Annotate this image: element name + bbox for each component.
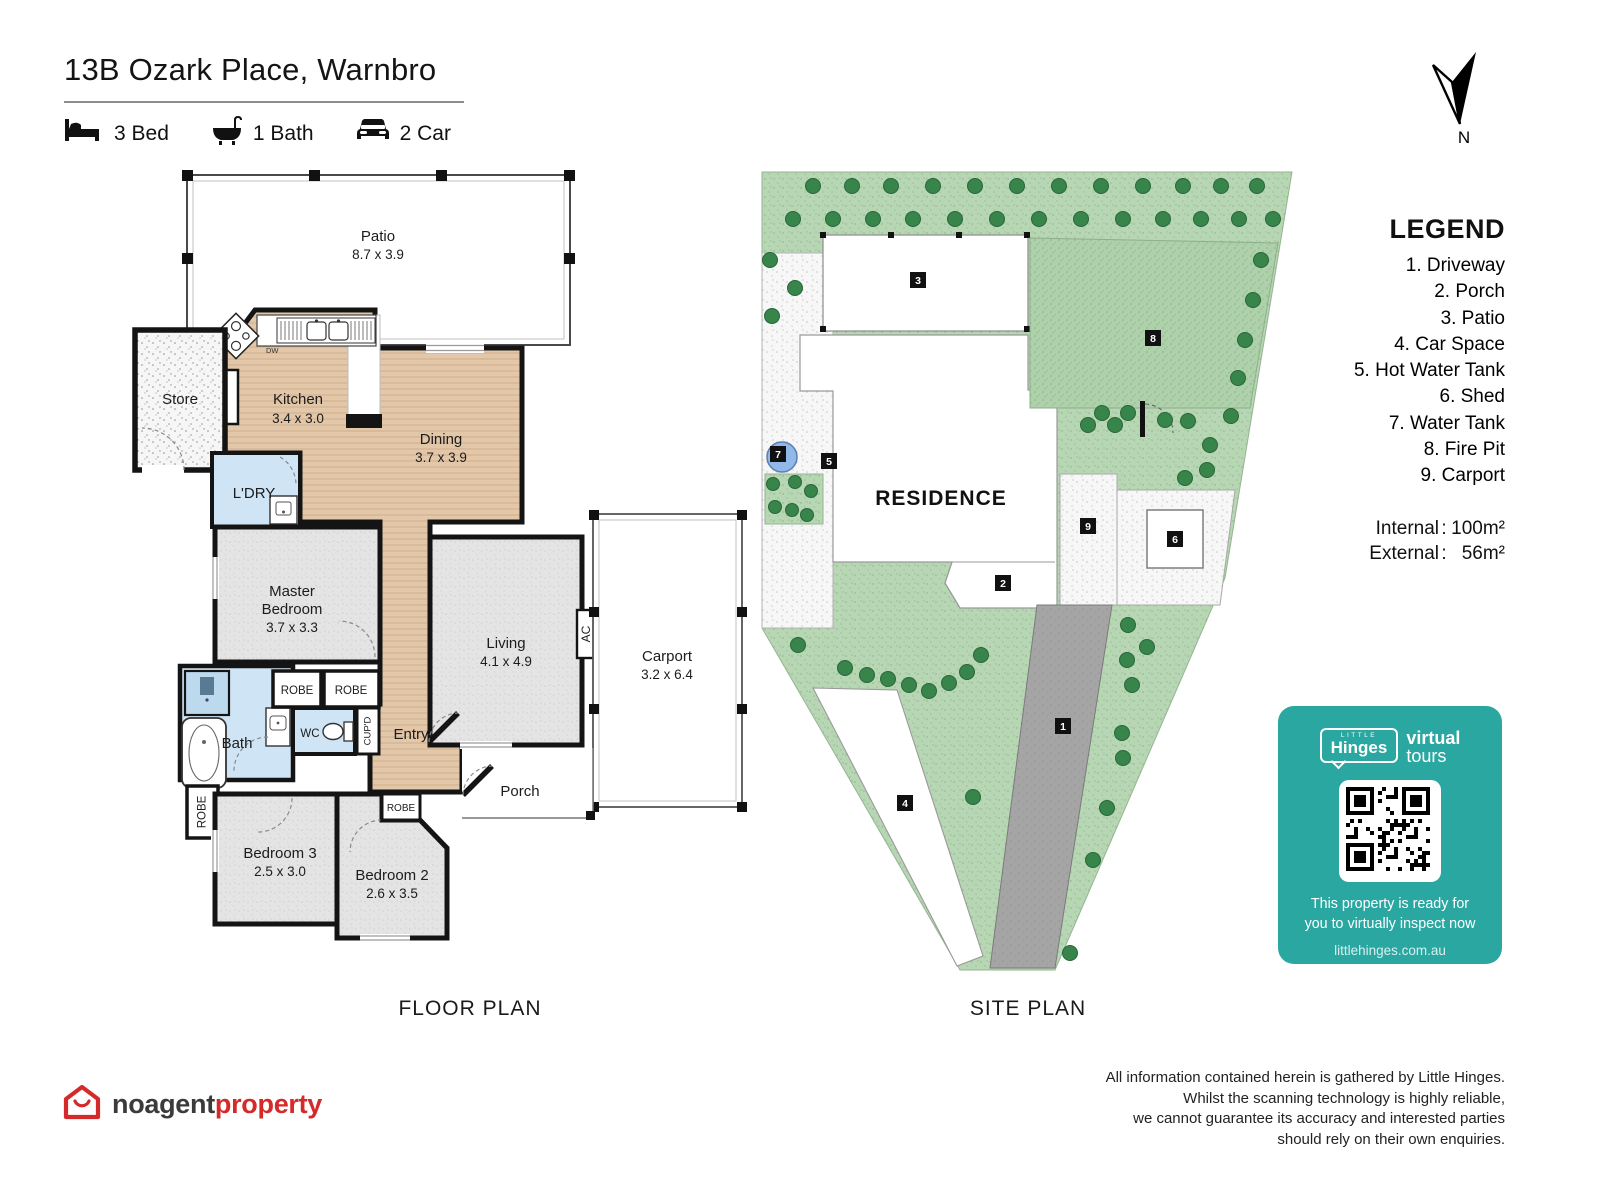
- feature-cars: 2 Car: [356, 117, 451, 150]
- site-plan-caption: SITE PLAN: [918, 997, 1138, 1021]
- beds-label: 3 Bed: [114, 122, 169, 146]
- feature-baths: 1 Bath: [211, 116, 314, 151]
- marker-4: 4: [897, 795, 913, 811]
- marker-9: 9: [1080, 518, 1096, 534]
- area-measurements: Internal : 100m² External : 56m²: [1354, 516, 1505, 566]
- virtual-tours-label: virtual tours: [1406, 729, 1460, 765]
- room-master-bedroom: Master Bedroom 3.7 x 3.3: [211, 527, 380, 662]
- legend: LEGEND 1. Driveway 2. Porch 3. Patio 4. …: [1354, 214, 1505, 566]
- floor-plan-caption: FLOOR PLAN: [360, 997, 580, 1021]
- robe-label-small: ROBE: [387, 803, 416, 814]
- shower-icon: [185, 671, 229, 715]
- cars-label: 2 Car: [400, 122, 451, 146]
- sink-icon: [277, 318, 375, 343]
- svg-text:3: 3: [915, 275, 921, 287]
- feature-beds: 3 Bed: [64, 117, 169, 150]
- robe-label-vertical: ROBE: [197, 795, 209, 828]
- room-porch: Porch: [462, 748, 595, 820]
- marker-8: 8: [1145, 330, 1161, 346]
- toilet-icon: [323, 722, 353, 741]
- internal-value: 100m²: [1449, 516, 1505, 541]
- svg-text:8: 8: [1150, 333, 1156, 345]
- hinges-bubble: LITTLE Hinges: [1320, 728, 1399, 763]
- svg-text:7: 7: [775, 449, 781, 461]
- ac-label: AC: [579, 625, 593, 642]
- bedroom3-label: Bedroom 3: [243, 845, 316, 862]
- little-hinges-logo: LITTLE Hinges virtual tours: [1320, 728, 1461, 765]
- dining-label: Dining: [420, 431, 463, 448]
- virtual-tour-card: LITTLE Hinges virtual tours This propert…: [1278, 706, 1502, 964]
- marker-5: 5: [821, 453, 837, 469]
- legend-item-fire-pit: 8. Fire Pit: [1354, 437, 1505, 463]
- site-carport-area: [1060, 474, 1117, 605]
- tour-message: This property is ready for you to virtua…: [1305, 895, 1476, 934]
- svg-text:6: 6: [1172, 534, 1178, 546]
- legend-title: LEGEND: [1354, 214, 1505, 245]
- marker-3: 3: [910, 272, 926, 288]
- store-label: Store: [162, 391, 198, 408]
- disclaimer: All information contained herein is gath…: [1106, 1068, 1505, 1150]
- wc-label: WC: [300, 728, 319, 740]
- svg-text:5: 5: [826, 456, 832, 468]
- room-wc: WC: [293, 708, 355, 754]
- external-value: 56m²: [1449, 541, 1505, 566]
- hinges-label: Hinges: [1331, 739, 1388, 757]
- internal-label: Internal: [1376, 516, 1439, 541]
- room-carport: Carport 3.2 x 6.4: [589, 510, 747, 812]
- room-bedroom-3: Bedroom 3 2.5 x 3.0: [211, 794, 345, 924]
- tour-message-line2: you to virtually inspect now: [1305, 915, 1476, 935]
- disclaimer-line3: we cannot guarantee its accuracy and int…: [1106, 1109, 1505, 1130]
- robe-label-1: ROBE: [281, 685, 314, 697]
- patio-dims: 8.7 x 3.9: [352, 247, 404, 262]
- virtual-word: virtual: [1406, 729, 1460, 747]
- page-title: 13B Ozark Place, Warnbro: [64, 52, 436, 88]
- living-dims: 4.1 x 4.9: [480, 654, 532, 669]
- internal-area-row: Internal : 100m²: [1354, 516, 1505, 541]
- house-icon: [62, 1084, 102, 1125]
- master-label-2: Bedroom: [262, 601, 323, 618]
- tours-word: tours: [1406, 747, 1460, 765]
- svg-text:4: 4: [902, 798, 908, 810]
- legend-item-water-tank: 7. Water Tank: [1354, 411, 1505, 437]
- site-plan: RESIDENCE 3 8 7 5 9 6 2 1 4: [745, 158, 1305, 993]
- svg-text:9: 9: [1085, 521, 1091, 533]
- brand-wordmark: noagentproperty: [112, 1089, 322, 1120]
- robe-label-2: ROBE: [335, 685, 368, 697]
- svg-text:1: 1: [1060, 721, 1066, 733]
- bath-label: Bath: [222, 735, 253, 752]
- legend-item-carport: 9. Carport: [1354, 463, 1505, 489]
- brand-property: property: [215, 1089, 322, 1119]
- bed-icon: [64, 117, 104, 150]
- bedroom2-label: Bedroom 2: [355, 867, 428, 884]
- porch-label: Porch: [500, 783, 539, 800]
- property-features: 3 Bed 1 Bath 2 C: [64, 116, 451, 151]
- legend-item-driveway: 1. Driveway: [1354, 253, 1505, 279]
- tour-message-line1: This property is ready for: [1305, 895, 1476, 915]
- living-label: Living: [486, 635, 525, 652]
- bedroom2-dims: 2.6 x 3.5: [366, 886, 418, 901]
- legend-item-patio: 3. Patio: [1354, 306, 1505, 332]
- internal-colon: :: [1439, 516, 1449, 541]
- qr-code: [1339, 780, 1441, 882]
- external-label: External: [1369, 541, 1439, 566]
- property-plan-page: 13B Ozark Place, Warnbro 3 Bed: [0, 0, 1600, 1200]
- car-icon: [356, 117, 390, 150]
- patio-label: Patio: [361, 228, 395, 245]
- laundry-label: L'DRY: [233, 485, 276, 502]
- marker-7: 7: [770, 446, 786, 462]
- north-arrow: N: [1430, 52, 1494, 153]
- entry-label: Entry: [393, 726, 429, 743]
- legend-item-shed: 6. Shed: [1354, 384, 1505, 410]
- master-label-1: Master: [269, 583, 315, 600]
- dining-dims: 3.7 x 3.9: [415, 450, 467, 465]
- baths-label: 1 Bath: [253, 122, 314, 146]
- external-area-row: External : 56m²: [1354, 541, 1505, 566]
- disclaimer-line1: All information contained herein is gath…: [1106, 1068, 1505, 1089]
- marker-2: 2: [995, 575, 1011, 591]
- bathtub-icon: [182, 718, 226, 788]
- kitchen-dims: 3.4 x 3.0: [272, 411, 324, 426]
- legend-item-hot-water-tank: 5. Hot Water Tank: [1354, 358, 1505, 384]
- carport-label: Carport: [642, 648, 693, 665]
- room-laundry: L'DRY: [212, 453, 300, 527]
- brand-noagent: noagent: [112, 1089, 215, 1119]
- external-colon: :: [1439, 541, 1449, 566]
- floor-plan: Patio 8.7 x 3.9: [30, 152, 750, 987]
- bedroom3-dims: 2.5 x 3.0: [254, 864, 306, 879]
- carport-dims: 3.2 x 6.4: [641, 667, 693, 682]
- agency-logo: noagentproperty: [62, 1084, 322, 1125]
- disclaimer-line4: should rely on their own enquiries.: [1106, 1130, 1505, 1151]
- residence-label: RESIDENCE: [875, 487, 1007, 510]
- legend-item-porch: 2. Porch: [1354, 279, 1505, 305]
- tour-website: littlehinges.com.au: [1334, 943, 1446, 958]
- cupboard-label: CUP'D: [363, 716, 374, 745]
- disclaimer-line2: Whilst the scanning technology is highly…: [1106, 1089, 1505, 1110]
- north-label: N: [1458, 128, 1470, 147]
- marker-6: 6: [1167, 531, 1183, 547]
- title-underline: [64, 101, 464, 103]
- marker-1: 1: [1055, 718, 1071, 734]
- kitchen-label: Kitchen: [273, 391, 323, 408]
- svg-text:2: 2: [1000, 578, 1006, 590]
- master-dims: 3.7 x 3.3: [266, 620, 318, 635]
- vanity-icon: [266, 708, 290, 746]
- dishwasher-label: DW: [266, 346, 279, 355]
- gate-bar: [1140, 401, 1145, 437]
- bath-icon: [211, 116, 243, 151]
- legend-item-car-space: 4. Car Space: [1354, 332, 1505, 358]
